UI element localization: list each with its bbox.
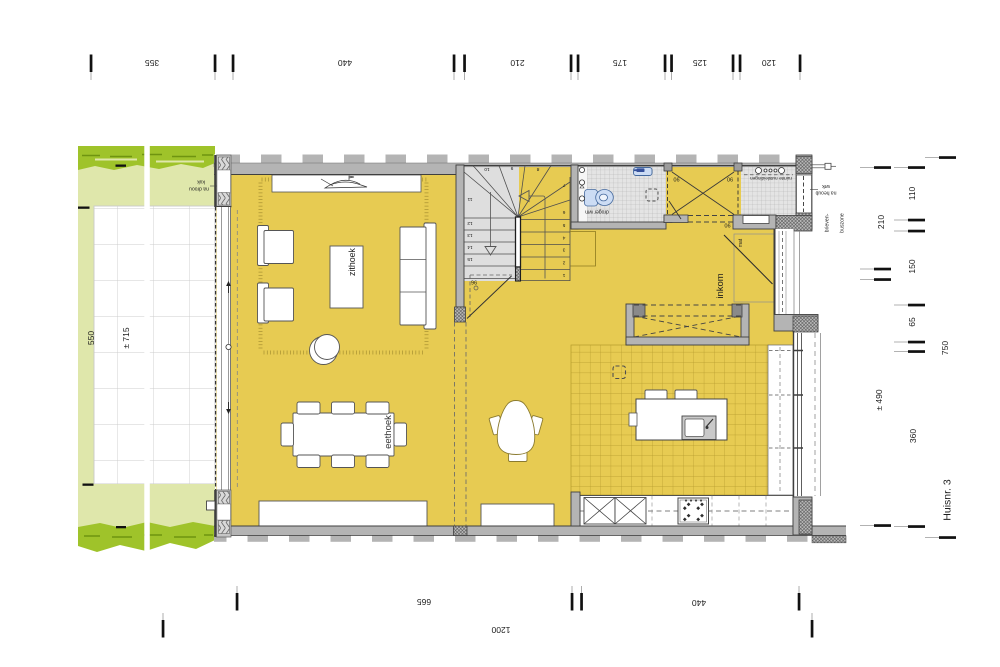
svg-text:440: 440 xyxy=(338,58,352,68)
svg-text:440: 440 xyxy=(692,598,706,608)
svg-text:360: 360 xyxy=(908,429,918,443)
svg-text:9: 9 xyxy=(510,165,513,171)
svg-text:± 715: ± 715 xyxy=(121,327,131,348)
svg-text:Huisnr. 3: Huisnr. 3 xyxy=(942,479,954,521)
svg-text:eethoek: eethoek xyxy=(383,415,394,449)
svg-text:droger wm: droger wm xyxy=(585,209,609,215)
svg-text:brieven-: brieven- xyxy=(825,213,831,232)
svg-text:750: 750 xyxy=(940,341,950,355)
svg-text:96: 96 xyxy=(471,279,477,285)
svg-text:2: 2 xyxy=(562,260,565,266)
svg-text:1200: 1200 xyxy=(491,625,510,635)
svg-text:110: 110 xyxy=(907,186,917,200)
svg-text:± 490: ± 490 xyxy=(874,389,884,410)
svg-text:zithoek: zithoek xyxy=(347,247,357,275)
svg-text:na heoub: na heoub xyxy=(815,190,836,196)
svg-text:210: 210 xyxy=(876,215,886,229)
svg-text:6: 6 xyxy=(562,209,565,215)
svg-text:125: 125 xyxy=(693,58,707,68)
svg-text:11: 11 xyxy=(467,196,472,202)
svg-text:120: 120 xyxy=(762,58,776,68)
svg-text:na droou: na droou xyxy=(189,186,209,192)
svg-text:4: 4 xyxy=(562,235,565,241)
svg-text:210: 210 xyxy=(510,58,524,68)
svg-text:mat: mat xyxy=(738,238,744,247)
svg-text:kuk: kuk xyxy=(197,179,205,185)
svg-text:355: 355 xyxy=(145,58,159,68)
svg-text:150: 150 xyxy=(907,259,917,273)
svg-text:12: 12 xyxy=(467,220,473,226)
svg-text:90: 90 xyxy=(727,176,733,182)
svg-text:7: 7 xyxy=(562,182,565,188)
svg-text:90: 90 xyxy=(673,176,679,182)
svg-text:90: 90 xyxy=(724,222,730,228)
svg-text:65: 65 xyxy=(907,317,917,327)
svg-text:14: 14 xyxy=(467,244,473,250)
svg-text:inkom: inkom xyxy=(715,273,726,298)
svg-text:ruimte nutsleidingen: ruimte nutsleidingen xyxy=(750,176,792,181)
svg-text:3: 3 xyxy=(562,247,565,253)
svg-text:wrk: wrk xyxy=(822,183,830,189)
svg-text:15: 15 xyxy=(467,256,473,262)
svg-text:5: 5 xyxy=(562,222,565,228)
svg-text:175: 175 xyxy=(613,58,627,68)
svg-text:550: 550 xyxy=(86,331,96,345)
svg-text:buszone: buszone xyxy=(840,213,846,233)
svg-text:665: 665 xyxy=(417,597,431,607)
svg-text:1: 1 xyxy=(562,272,565,278)
svg-text:10: 10 xyxy=(484,166,490,172)
svg-text:13: 13 xyxy=(467,232,473,238)
svg-text:8: 8 xyxy=(536,166,539,172)
